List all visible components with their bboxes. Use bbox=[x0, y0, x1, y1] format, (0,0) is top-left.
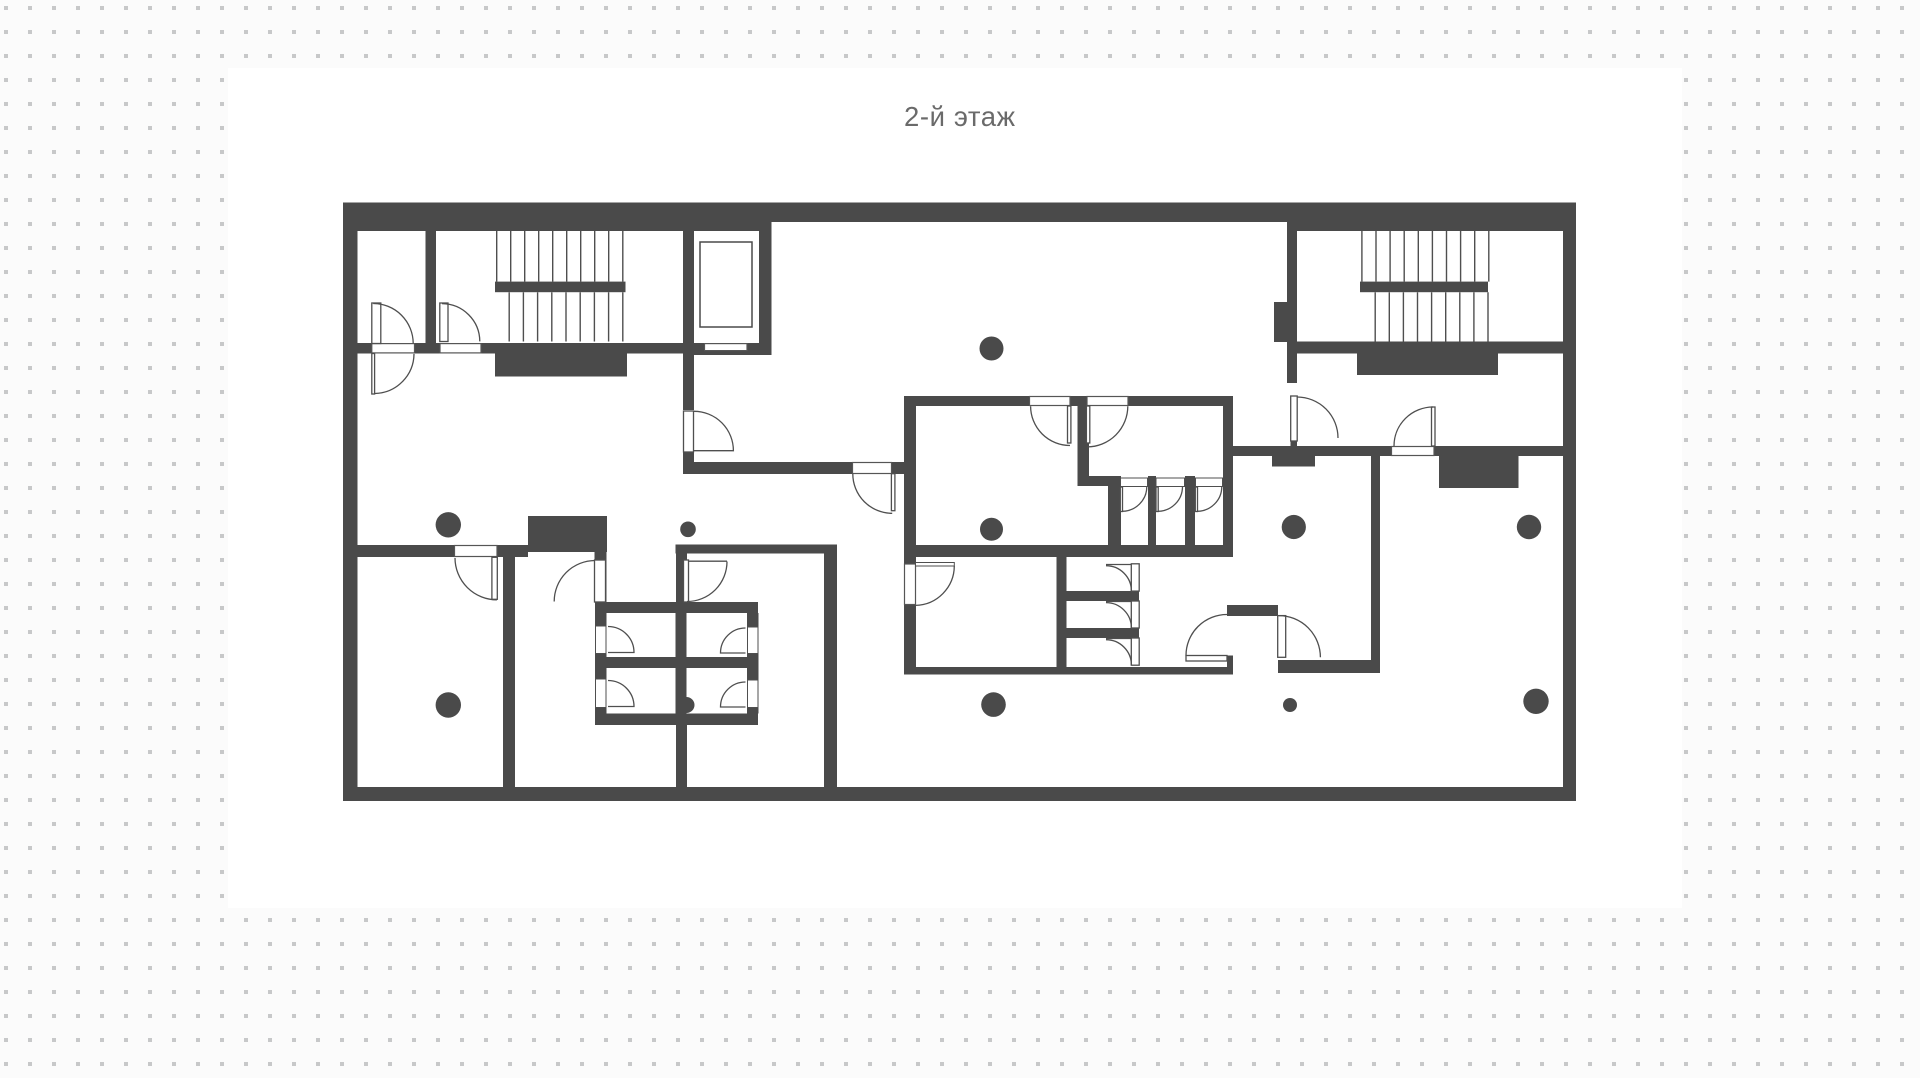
svg-text:2-й этаж: 2-й этаж bbox=[904, 101, 1016, 132]
